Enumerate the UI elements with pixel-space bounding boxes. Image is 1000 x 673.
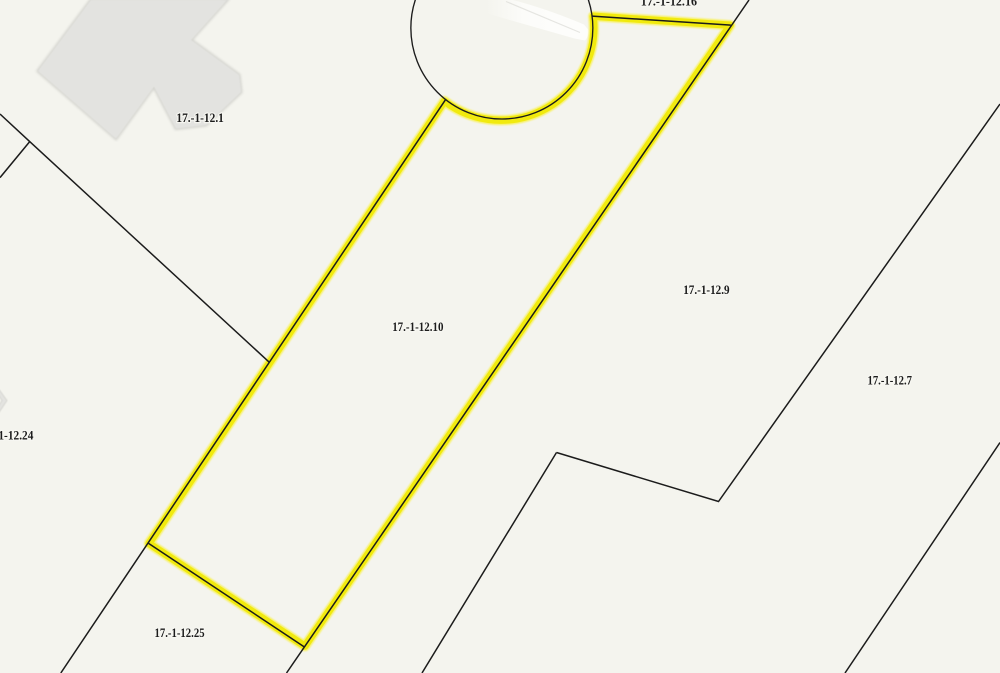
svg-text:17.-1-12.24: 17.-1-12.24 (0, 429, 33, 443)
svg-text:17.-1-12.16: 17.-1-12.16 (641, 0, 697, 8)
svg-text:17.-1-12.10: 17.-1-12.10 (392, 320, 443, 334)
svg-text:17.-1-12.1: 17.-1-12.1 (176, 111, 224, 125)
svg-text:17.-1-12.9: 17.-1-12.9 (683, 283, 729, 297)
svg-text:17.-1-12.7: 17.-1-12.7 (868, 374, 913, 388)
svg-text:17.-1-12.25: 17.-1-12.25 (155, 626, 205, 640)
